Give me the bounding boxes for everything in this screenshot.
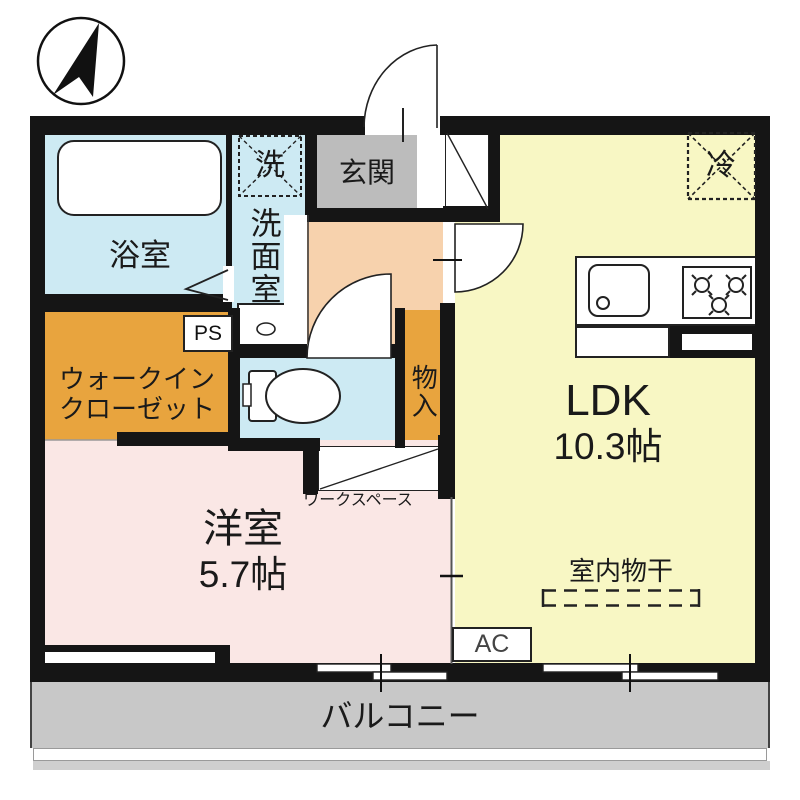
balcony-edge-gray — [33, 761, 770, 770]
bathroom-label: 浴室 — [75, 240, 205, 273]
wall-washroom-right — [305, 133, 317, 215]
wall-bath-washroom — [226, 133, 232, 294]
workspace-desk — [318, 446, 440, 491]
ac-label: AC — [475, 630, 510, 659]
wall-right — [755, 116, 770, 682]
wall-bath-bottom — [30, 294, 232, 312]
balcony-label: バルコニー — [290, 700, 510, 734]
bathtub — [57, 140, 222, 216]
wic-label-line1: ウォークイン — [47, 366, 227, 393]
pipe-space-box: PS — [183, 315, 233, 352]
wall-workspace-stub — [303, 444, 318, 494]
genkan-label: 玄関 — [317, 158, 417, 187]
wall-bottom — [30, 663, 770, 682]
kitchen-sink — [588, 264, 650, 317]
entry-door-threshold — [365, 116, 440, 135]
wall-toilet-top-right — [391, 344, 405, 358]
ldk-size-label: 10.3帖 — [528, 428, 688, 467]
wic-label-line2: クローゼット — [47, 396, 227, 423]
ac-box: AC — [452, 627, 532, 662]
storage-label: 物入 — [409, 342, 436, 442]
kitchen-stove — [682, 266, 752, 319]
kitchen-counter-lower — [575, 326, 670, 358]
balcony-edge-white — [33, 748, 767, 761]
floorplan: 浴室 洗 洗面室 玄関 ウォークイン クローゼット 物入 洋室 5.7帖 LDK… — [0, 0, 800, 800]
bedroom-label: 洋室 — [163, 508, 323, 550]
wall-genkan-step — [307, 208, 443, 222]
window-slot-bottom-left — [45, 652, 215, 663]
wall-under-shoe-cabinet — [443, 206, 500, 222]
wall-shoe-cabinet-right — [489, 131, 500, 208]
washroom-door-opening — [284, 215, 307, 344]
wall-workspace-right — [438, 435, 455, 499]
workspace-label: ワークスペース — [288, 493, 428, 510]
shoe-cabinet — [445, 131, 489, 211]
kitchen-band-slot — [682, 334, 752, 350]
wall-left — [30, 116, 45, 682]
pipe-space-label: PS — [194, 322, 222, 346]
washer-symbol-label: 洗 — [240, 150, 300, 182]
ldk-label: LDK — [528, 378, 688, 424]
bedroom-size-label: 5.7帖 — [163, 556, 323, 595]
room-toilet — [240, 355, 397, 445]
wall-closet-bottom — [117, 432, 230, 446]
washroom-label: 洗面室 — [246, 196, 279, 316]
wall-storage-left — [395, 308, 405, 448]
toilet-door-opening — [307, 344, 391, 358]
refrigerator-label: 冷 — [691, 150, 751, 182]
compass-north-icon — [38, 18, 124, 104]
indoor-drying-label: 室内物干 — [541, 558, 701, 585]
